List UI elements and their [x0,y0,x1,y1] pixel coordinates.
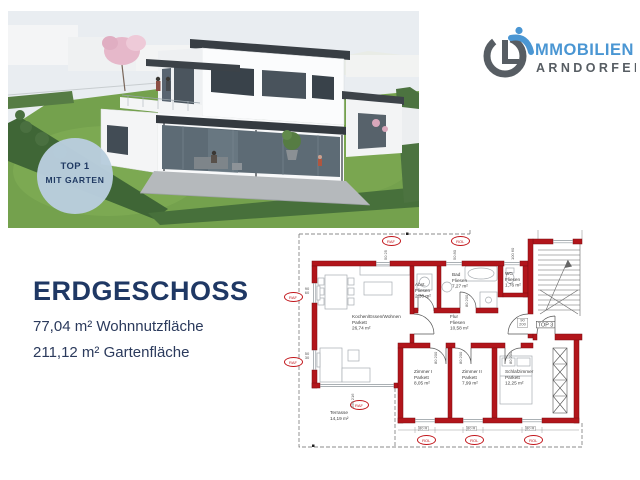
company-logo: MMOBILIEN ARNDORFER [478,26,636,82]
dim-bottom-window1: 80 R [418,426,428,431]
room-label-zimmer1: Zimmer IParkett8,05 m² [414,369,432,386]
floorplan: Kochen/Essen/WohnenParkett26,74 m² Abst.… [284,230,640,456]
dim-door-zimmer1: 80 200 [434,352,438,364]
dim-wc-window: 100 60 [511,248,515,260]
room-label-abstellraum: Abst.Fliesen2,30 m² [415,282,431,299]
marker-rol-bottom2: ROL [465,435,484,445]
floorplan-drawing [284,230,640,456]
logo-text-top: MMOBILIEN [535,41,634,59]
dim-left-window1: 90 60 [302,287,312,295]
dim-door-schlafzimmer: 80 200 [509,352,513,364]
dim-bottom-window2: 80 R [466,426,476,431]
badge-line1: TOP 1 [37,161,113,172]
room-label-terrasse: Terrasse14,19 m² [330,410,348,421]
dim-entry-door: 90 200 [517,318,528,327]
flyer-page: TOP 1 MIT GARTEN MMOBILIEN ARNDORFER ERD… [0,0,640,480]
dim-top-window1: 50 25 [384,250,388,260]
dim-door-zimmer2: 80 200 [459,352,463,364]
dim-top-window2: 50 80 [453,250,457,260]
dim-door-bad: 80 200 [465,295,469,307]
badge-line2: MIT GARTEN [37,175,113,185]
logo-text-bottom: ARNDORFER [536,61,636,75]
marker-raf-left1: RAF [284,292,303,302]
room-label-schlafzimmer: SchlafzimmerParkett12,25 m² [505,369,533,386]
marker-raf-top: RAF [382,236,401,246]
dim-bottom-window3: 80 R [525,426,535,431]
unit-info: ERDGESCHOSS 77,04 m² Wohnnutzfläche 211,… [33,276,249,361]
dim-terrace-door: 250 216 [351,394,355,408]
dim-left-window2: 50 30 [302,352,312,360]
room-label-zimmer2: Zimmer IIParkett7,99 m² [462,369,482,386]
marker-rol-top: ROL [451,236,470,246]
marker-raf-left2: RAF [284,357,303,367]
marker-rol-bottom3: ROL [524,435,543,445]
staircase [538,244,580,316]
page-title: ERDGESCHOSS [33,276,249,307]
room-label-bad: BadFliesen7,27 m² [452,272,468,289]
top1-garden-badge: TOP 1 MIT GARTEN [37,138,113,214]
room-label-kochen-essen-wohnen: Kochen/Essen/WohnenParkett26,74 m² [352,314,401,331]
marker-rol-bottom1: ROL [417,435,436,445]
room-label-wc: WCFliesen1,76 m² [505,271,521,288]
living-area-line: 77,04 m² Wohnnutzfläche [33,318,249,335]
room-label-flur: FlurFliesen10,58 m² [450,314,468,331]
house-rendering-photo: TOP 1 MIT GARTEN [8,11,419,228]
garden-area-line: 211,12 m² Gartenfläche [33,344,249,361]
wardrobe [553,348,567,413]
neighbor-unit-label: TOP 3 [536,321,555,328]
